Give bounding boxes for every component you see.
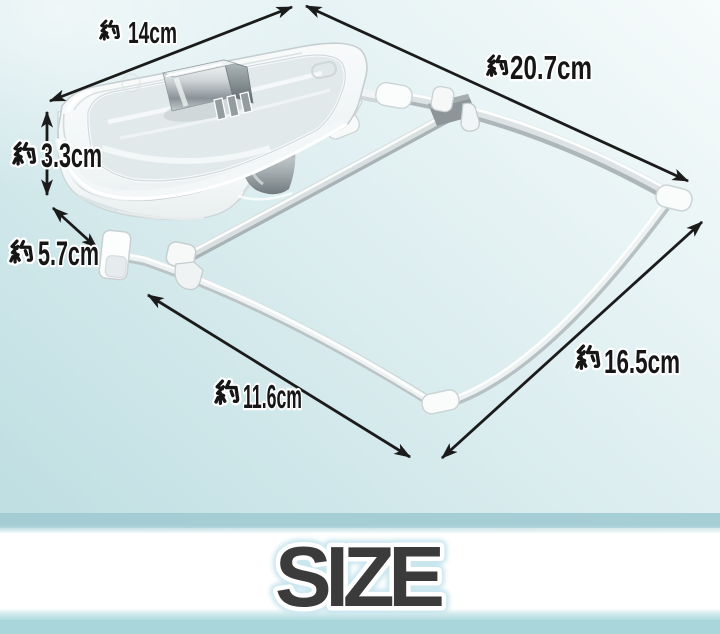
svg-text:11.6cm: 11.6cm xyxy=(243,378,302,415)
svg-text:SIZE: SIZE xyxy=(275,530,445,625)
svg-text:14cm: 14cm xyxy=(128,15,177,50)
svg-text:20.7cm: 20.7cm xyxy=(510,49,592,86)
svg-text:3.3cm: 3.3cm xyxy=(41,137,102,175)
svg-text:5.7cm: 5.7cm xyxy=(38,235,99,273)
svg-text:16.5cm: 16.5cm xyxy=(604,343,680,380)
